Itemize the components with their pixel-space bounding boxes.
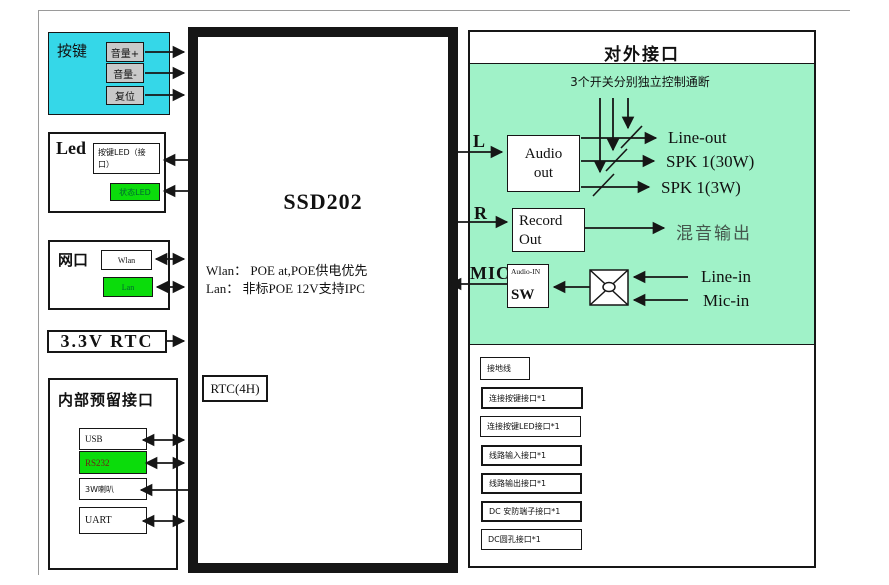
spk-3w-label: SPK 1(3W) <box>661 178 741 198</box>
rtc-3v3-box: 3.3V RTC <box>47 330 167 353</box>
connector-keypad: 连接按键接口*1 <box>481 387 583 409</box>
network-panel-title: 网口 <box>58 249 88 270</box>
volume-up-button: 音量+ <box>106 42 144 62</box>
ssd202-note-wlan: Wlan： POE at,POE供电优先 <box>206 260 367 279</box>
line-in-label: Line-in <box>701 267 751 287</box>
external-interfaces-title: 对外接口 <box>470 40 814 65</box>
internal-panel: 内部预留接口 <box>48 378 178 570</box>
ssd202-box: SSD202 Wlan： POE at,POE供电优先 Lan： 非标POE 1… <box>188 27 458 573</box>
ssd202-title: SSD202 <box>198 189 448 215</box>
uart-box: UART <box>79 507 147 534</box>
line-out-label: Line-out <box>668 128 727 148</box>
volume-down-button: 音量- <box>106 63 144 83</box>
button-led-label: 按键LED（接口） <box>98 147 156 171</box>
status-led-box: 状态LED <box>110 183 160 201</box>
page-border-top <box>38 10 850 11</box>
reset-button: 复位 <box>106 86 144 105</box>
lan-box: Lan <box>103 277 153 297</box>
page-border-left <box>38 10 39 575</box>
audio-out-label: Audio out <box>521 145 567 183</box>
mic-label: MIC <box>470 263 510 284</box>
connector-line-in: 线路输入接口*1 <box>481 445 582 466</box>
speaker-3w-box: 3W喇叭 <box>79 478 147 500</box>
r-channel-label: R <box>474 203 487 224</box>
wlan-box: Wlan <box>101 250 152 270</box>
l-channel-label: L <box>473 131 485 152</box>
sw-label: SW <box>511 287 534 304</box>
ssd202-note-lan: Lan： 非标POE 12V支持IPC <box>206 278 365 297</box>
rs232-box: RS232 <box>79 451 147 474</box>
audio-out-box: Audio out <box>507 135 580 192</box>
usb-box: USB <box>79 428 147 450</box>
record-out-label: Record Out <box>519 212 571 250</box>
keypad-panel-title: 按键 <box>57 40 87 61</box>
block-diagram: 按键 音量+ 音量- 复位 Led 按键LED（接口） 状态LED 网口 Wla… <box>0 0 889 585</box>
spk-30w-label: SPK 1(30W) <box>666 152 754 172</box>
mix-out-label: 混音输出 <box>676 219 752 244</box>
connector-dc-terminal: DC 安防端子接口*1 <box>481 501 582 522</box>
rtc-4h-box: RTC(4H) <box>202 375 268 402</box>
audio-in-label: Audio-IN <box>511 267 545 276</box>
connector-line-out: 线路输出接口*1 <box>481 473 582 494</box>
mic-in-label: Mic-in <box>703 291 749 311</box>
record-out-box: Record Out <box>512 208 585 252</box>
button-led-box: 按键LED（接口） <box>93 143 160 174</box>
led-panel-title: Led <box>56 138 86 159</box>
connector-keypad-led: 连接按键LED接口*1 <box>480 416 581 437</box>
connector-ground: 接地线 <box>480 357 530 380</box>
connector-dc-jack: DC圆孔接口*1 <box>481 529 582 550</box>
switch-note: 3个开关分别独立控制通断 <box>540 73 740 90</box>
internal-panel-title: 内部预留接口 <box>58 389 154 410</box>
audio-in-sw-box: Audio-IN SW <box>507 264 549 308</box>
